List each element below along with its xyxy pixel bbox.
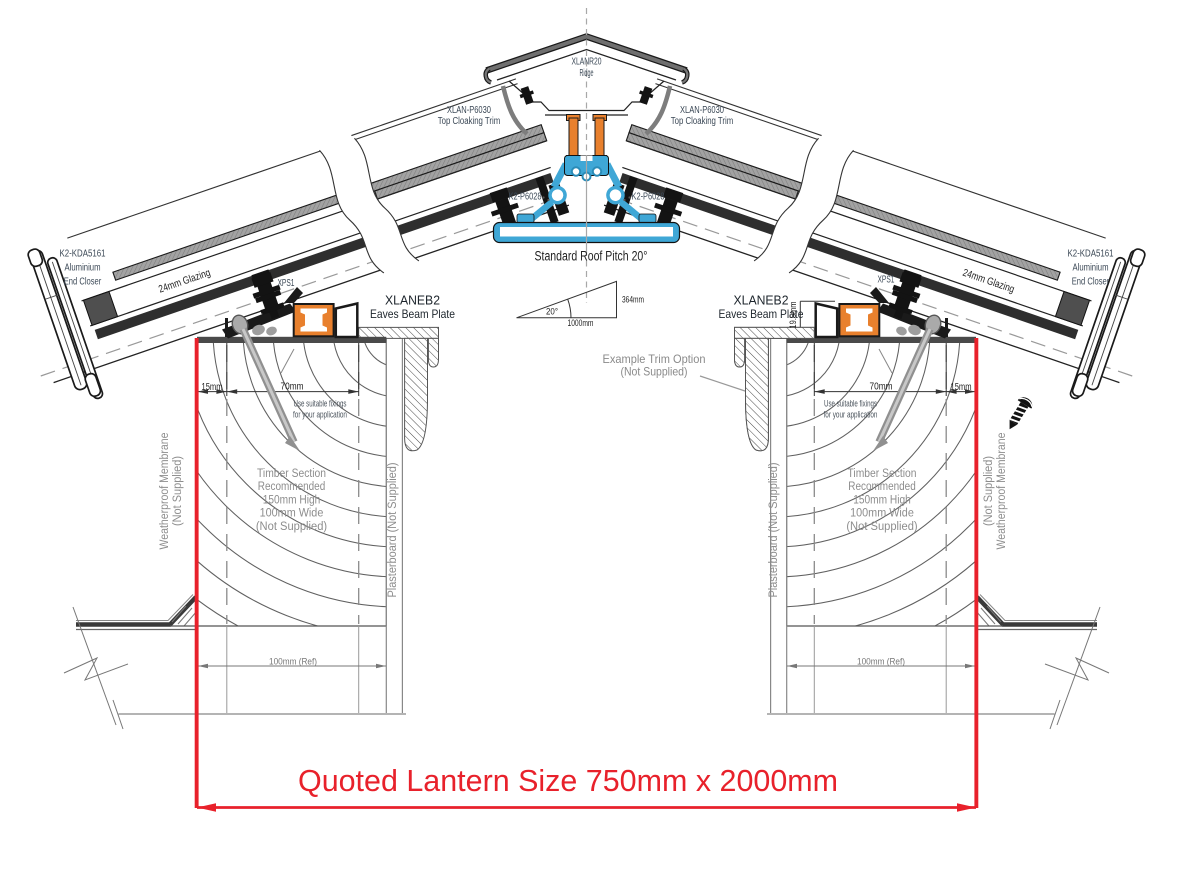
- svg-text:XLANEB2: XLANEB2: [734, 293, 789, 308]
- svg-text:Recommended: Recommended: [258, 481, 326, 493]
- svg-text:End Closer: End Closer: [64, 277, 102, 288]
- svg-text:Aluminium: Aluminium: [65, 263, 101, 274]
- svg-text:Weatherproof Membrane: Weatherproof Membrane: [159, 433, 171, 550]
- svg-text:Plasterboard (Not Supplied): Plasterboard (Not Supplied): [387, 462, 399, 597]
- svg-text:(Not Supplied): (Not Supplied): [172, 456, 184, 526]
- svg-text:XLANEB2: XLANEB2: [385, 293, 440, 308]
- svg-text:70mm: 70mm: [870, 382, 893, 393]
- svg-text:Top Cloaking Trim: Top Cloaking Trim: [438, 116, 501, 127]
- svg-text:Ridge: Ridge: [580, 68, 594, 79]
- svg-text:19.5mm: 19.5mm: [788, 302, 798, 329]
- svg-text:K2-KDA5161: K2-KDA5161: [60, 249, 106, 260]
- svg-text:150mm High: 150mm High: [853, 494, 911, 506]
- svg-text:Recommended: Recommended: [848, 481, 916, 493]
- svg-text:Use suitable fixings: Use suitable fixings: [824, 399, 877, 410]
- svg-text:Plasterboard (Not Supplied): Plasterboard (Not Supplied): [768, 462, 780, 597]
- svg-text:(Not Supplied): (Not Supplied): [256, 521, 327, 533]
- svg-text:(Not Supplied): (Not Supplied): [621, 365, 688, 379]
- svg-text:15mm: 15mm: [951, 382, 972, 393]
- svg-text:100mm (Ref): 100mm (Ref): [269, 657, 317, 668]
- svg-text:XLANR20: XLANR20: [572, 57, 602, 68]
- svg-text:for your application: for your application: [824, 410, 878, 421]
- svg-text:XLAN-P6030: XLAN-P6030: [447, 105, 491, 116]
- svg-text:1000mm: 1000mm: [568, 318, 594, 328]
- svg-text:End Closer: End Closer: [1072, 277, 1110, 288]
- svg-text:100mm Wide: 100mm Wide: [850, 508, 914, 520]
- svg-text:Eaves Beam Plate: Eaves Beam Plate: [370, 307, 455, 321]
- svg-text:70mm: 70mm: [281, 382, 304, 393]
- svg-text:XPS1: XPS1: [278, 278, 295, 289]
- svg-text:XLAN-P6030: XLAN-P6030: [680, 105, 724, 116]
- svg-text:150mm High: 150mm High: [263, 494, 321, 506]
- svg-text:364mm: 364mm: [622, 295, 644, 305]
- svg-text:20°: 20°: [546, 307, 558, 317]
- svg-text:100mm (Ref): 100mm (Ref): [857, 657, 905, 668]
- svg-text:Top Cloaking Trim: Top Cloaking Trim: [671, 116, 734, 127]
- svg-text:K2-P6028: K2-P6028: [509, 192, 542, 203]
- svg-text:Aluminium: Aluminium: [1073, 263, 1109, 274]
- svg-text:Timber Section: Timber Section: [848, 468, 917, 480]
- svg-text:(Not Supplied): (Not Supplied): [983, 456, 995, 526]
- svg-text:(Not Supplied): (Not Supplied): [846, 521, 917, 533]
- svg-text:for your application: for your application: [293, 410, 347, 421]
- svg-text:K2-KDA5161: K2-KDA5161: [1068, 249, 1114, 260]
- svg-text:Use suitable fixings: Use suitable fixings: [294, 399, 347, 410]
- svg-text:Timber Section: Timber Section: [257, 468, 326, 480]
- svg-text:XPS1: XPS1: [878, 275, 895, 286]
- svg-text:Weatherproof Membrane: Weatherproof Membrane: [996, 433, 1008, 550]
- svg-text:Quoted Lantern Size 750mm x 20: Quoted Lantern Size 750mm x 2000mm: [298, 763, 838, 798]
- svg-text:Standard Roof Pitch 20°: Standard Roof Pitch 20°: [535, 249, 648, 264]
- svg-text:15mm: 15mm: [202, 382, 223, 393]
- svg-text:K2-P6028: K2-P6028: [632, 192, 665, 203]
- svg-text:100mm Wide: 100mm Wide: [260, 508, 324, 520]
